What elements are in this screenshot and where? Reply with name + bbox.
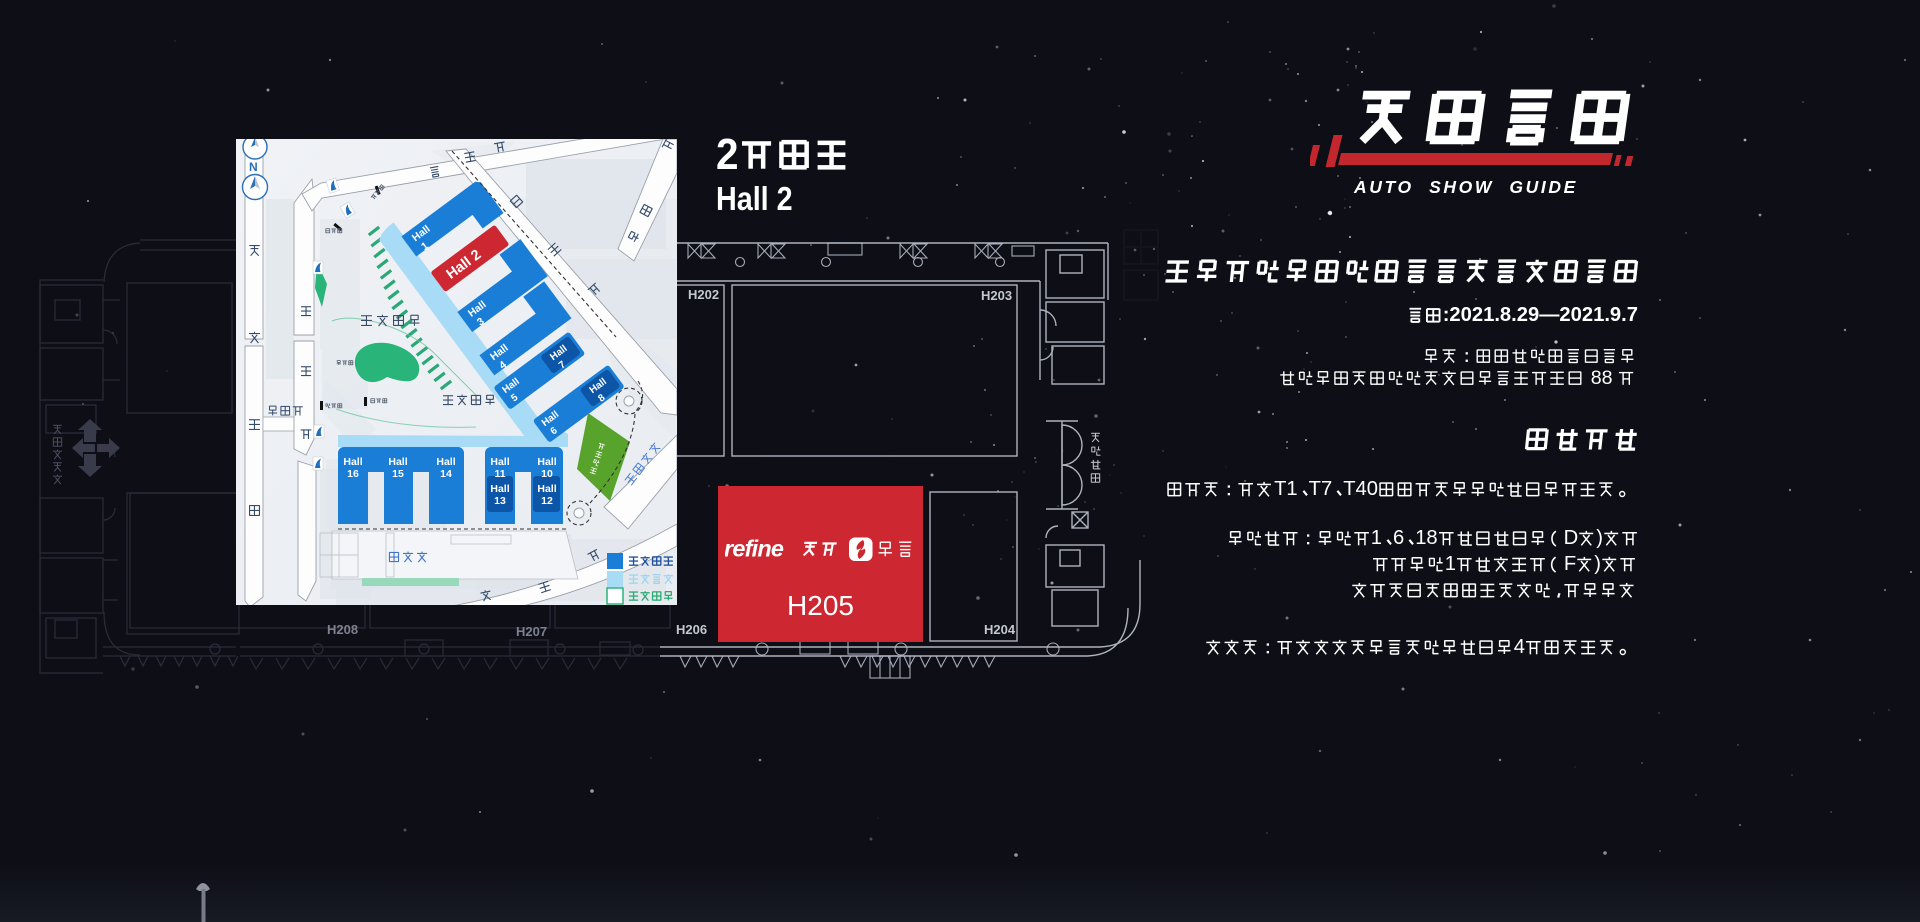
svg-text:H202: H202 [688, 287, 719, 302]
svg-text:13: 13 [494, 495, 506, 507]
svg-text:12: 12 [541, 495, 553, 507]
svg-text:Hall: Hall [490, 456, 509, 468]
svg-text:14: 14 [440, 468, 452, 480]
svg-text:H204: H204 [984, 622, 1016, 637]
svg-text:16: 16 [347, 468, 359, 480]
svg-text:Hall: Hall [343, 456, 362, 468]
svg-text:Hall: Hall [436, 456, 455, 468]
svg-text:11: 11 [494, 468, 505, 480]
svg-text:AUTO SHOW GUIDE: AUTO SHOW GUIDE [1353, 177, 1578, 197]
svg-text:H206: H206 [676, 622, 707, 637]
svg-text:refine: refine [725, 537, 784, 562]
svg-text:10: 10 [541, 468, 553, 480]
svg-text:H207: H207 [516, 624, 547, 639]
svg-text:Hall: Hall [490, 483, 509, 495]
svg-text:Hall: Hall [388, 456, 407, 468]
svg-text:N: N [249, 160, 258, 174]
svg-text:Hall: Hall [537, 456, 556, 468]
svg-text:H208: H208 [327, 622, 358, 637]
svg-text:15: 15 [392, 468, 404, 480]
svg-text:H203: H203 [981, 288, 1012, 303]
svg-text:Hall: Hall [537, 483, 556, 495]
